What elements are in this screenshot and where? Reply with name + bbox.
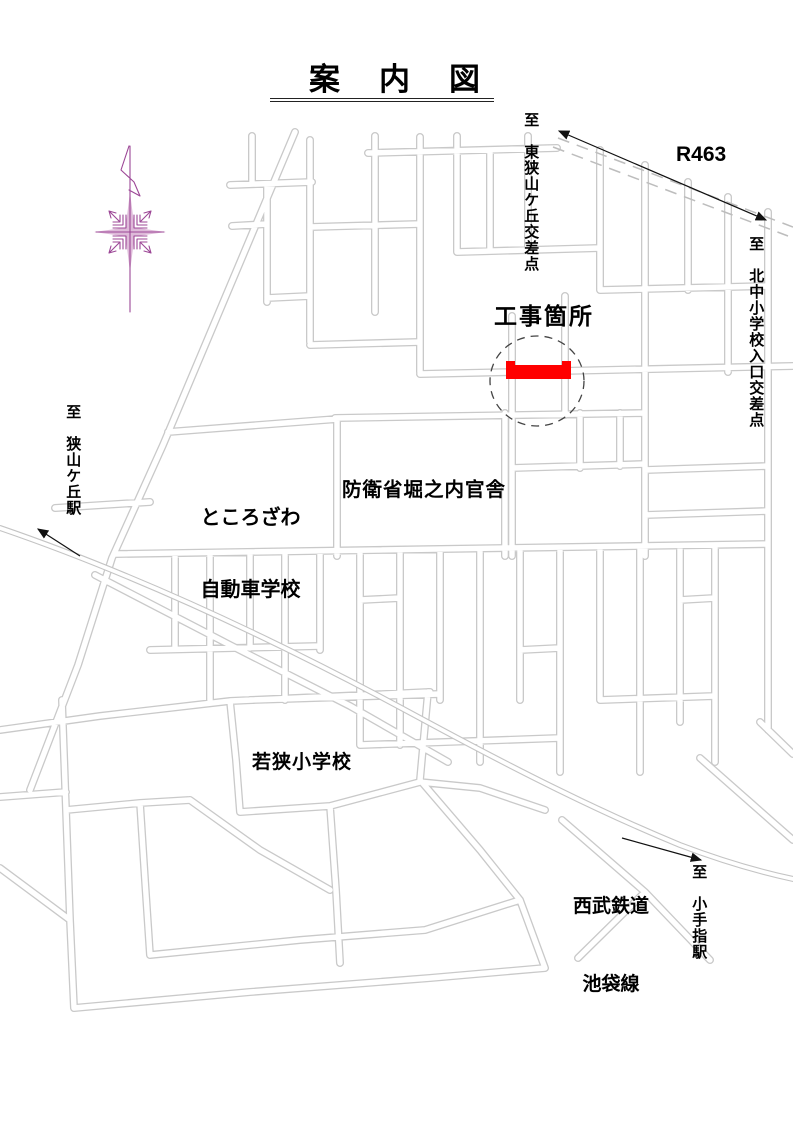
label-defense-ministry-horinouchi-housing: 防衛省堀之内官舎	[342, 473, 506, 502]
label-to-kitanaka-school-entrance-intersection: 至 北中小学校入口交差点	[747, 236, 763, 428]
title-underline	[270, 60, 494, 102]
compass-north-icon	[94, 146, 166, 312]
road-network	[0, 0, 793, 1122]
driving-school-line2: 自動車学校	[168, 578, 333, 602]
label-construction-site: 工事箇所	[494, 297, 594, 331]
route-463-road	[553, 138, 793, 236]
railway-line2: 池袋線	[562, 972, 660, 998]
label-to-higashi-sayamagaoka-intersection: 至 東狭山ケ丘交差点	[522, 112, 538, 272]
label-to-kotesashi-station: 至 小手指駅	[690, 864, 706, 960]
arrow-r463-both-ways	[559, 131, 766, 220]
driving-school-line1: ところざわ	[168, 506, 333, 530]
label-wakasa-elementary-school: 若狭小学校	[252, 747, 352, 774]
label-to-sayamagaoka-station: 至 狭山ケ丘駅	[64, 404, 80, 516]
label-route-463: R463	[676, 143, 726, 167]
label-seibu-railway-ikebukuro-line: 西武鉄道 池袋線	[562, 842, 660, 1050]
railway-line1: 西武鉄道	[562, 894, 660, 920]
guide-map: 案 内 図 至 東狭山ケ丘交差点 R463 至 北中小学校入口交差点 工事箇所 …	[0, 0, 793, 1122]
label-tokorozawa-driving-school: ところざわ 自動車学校	[168, 458, 333, 650]
